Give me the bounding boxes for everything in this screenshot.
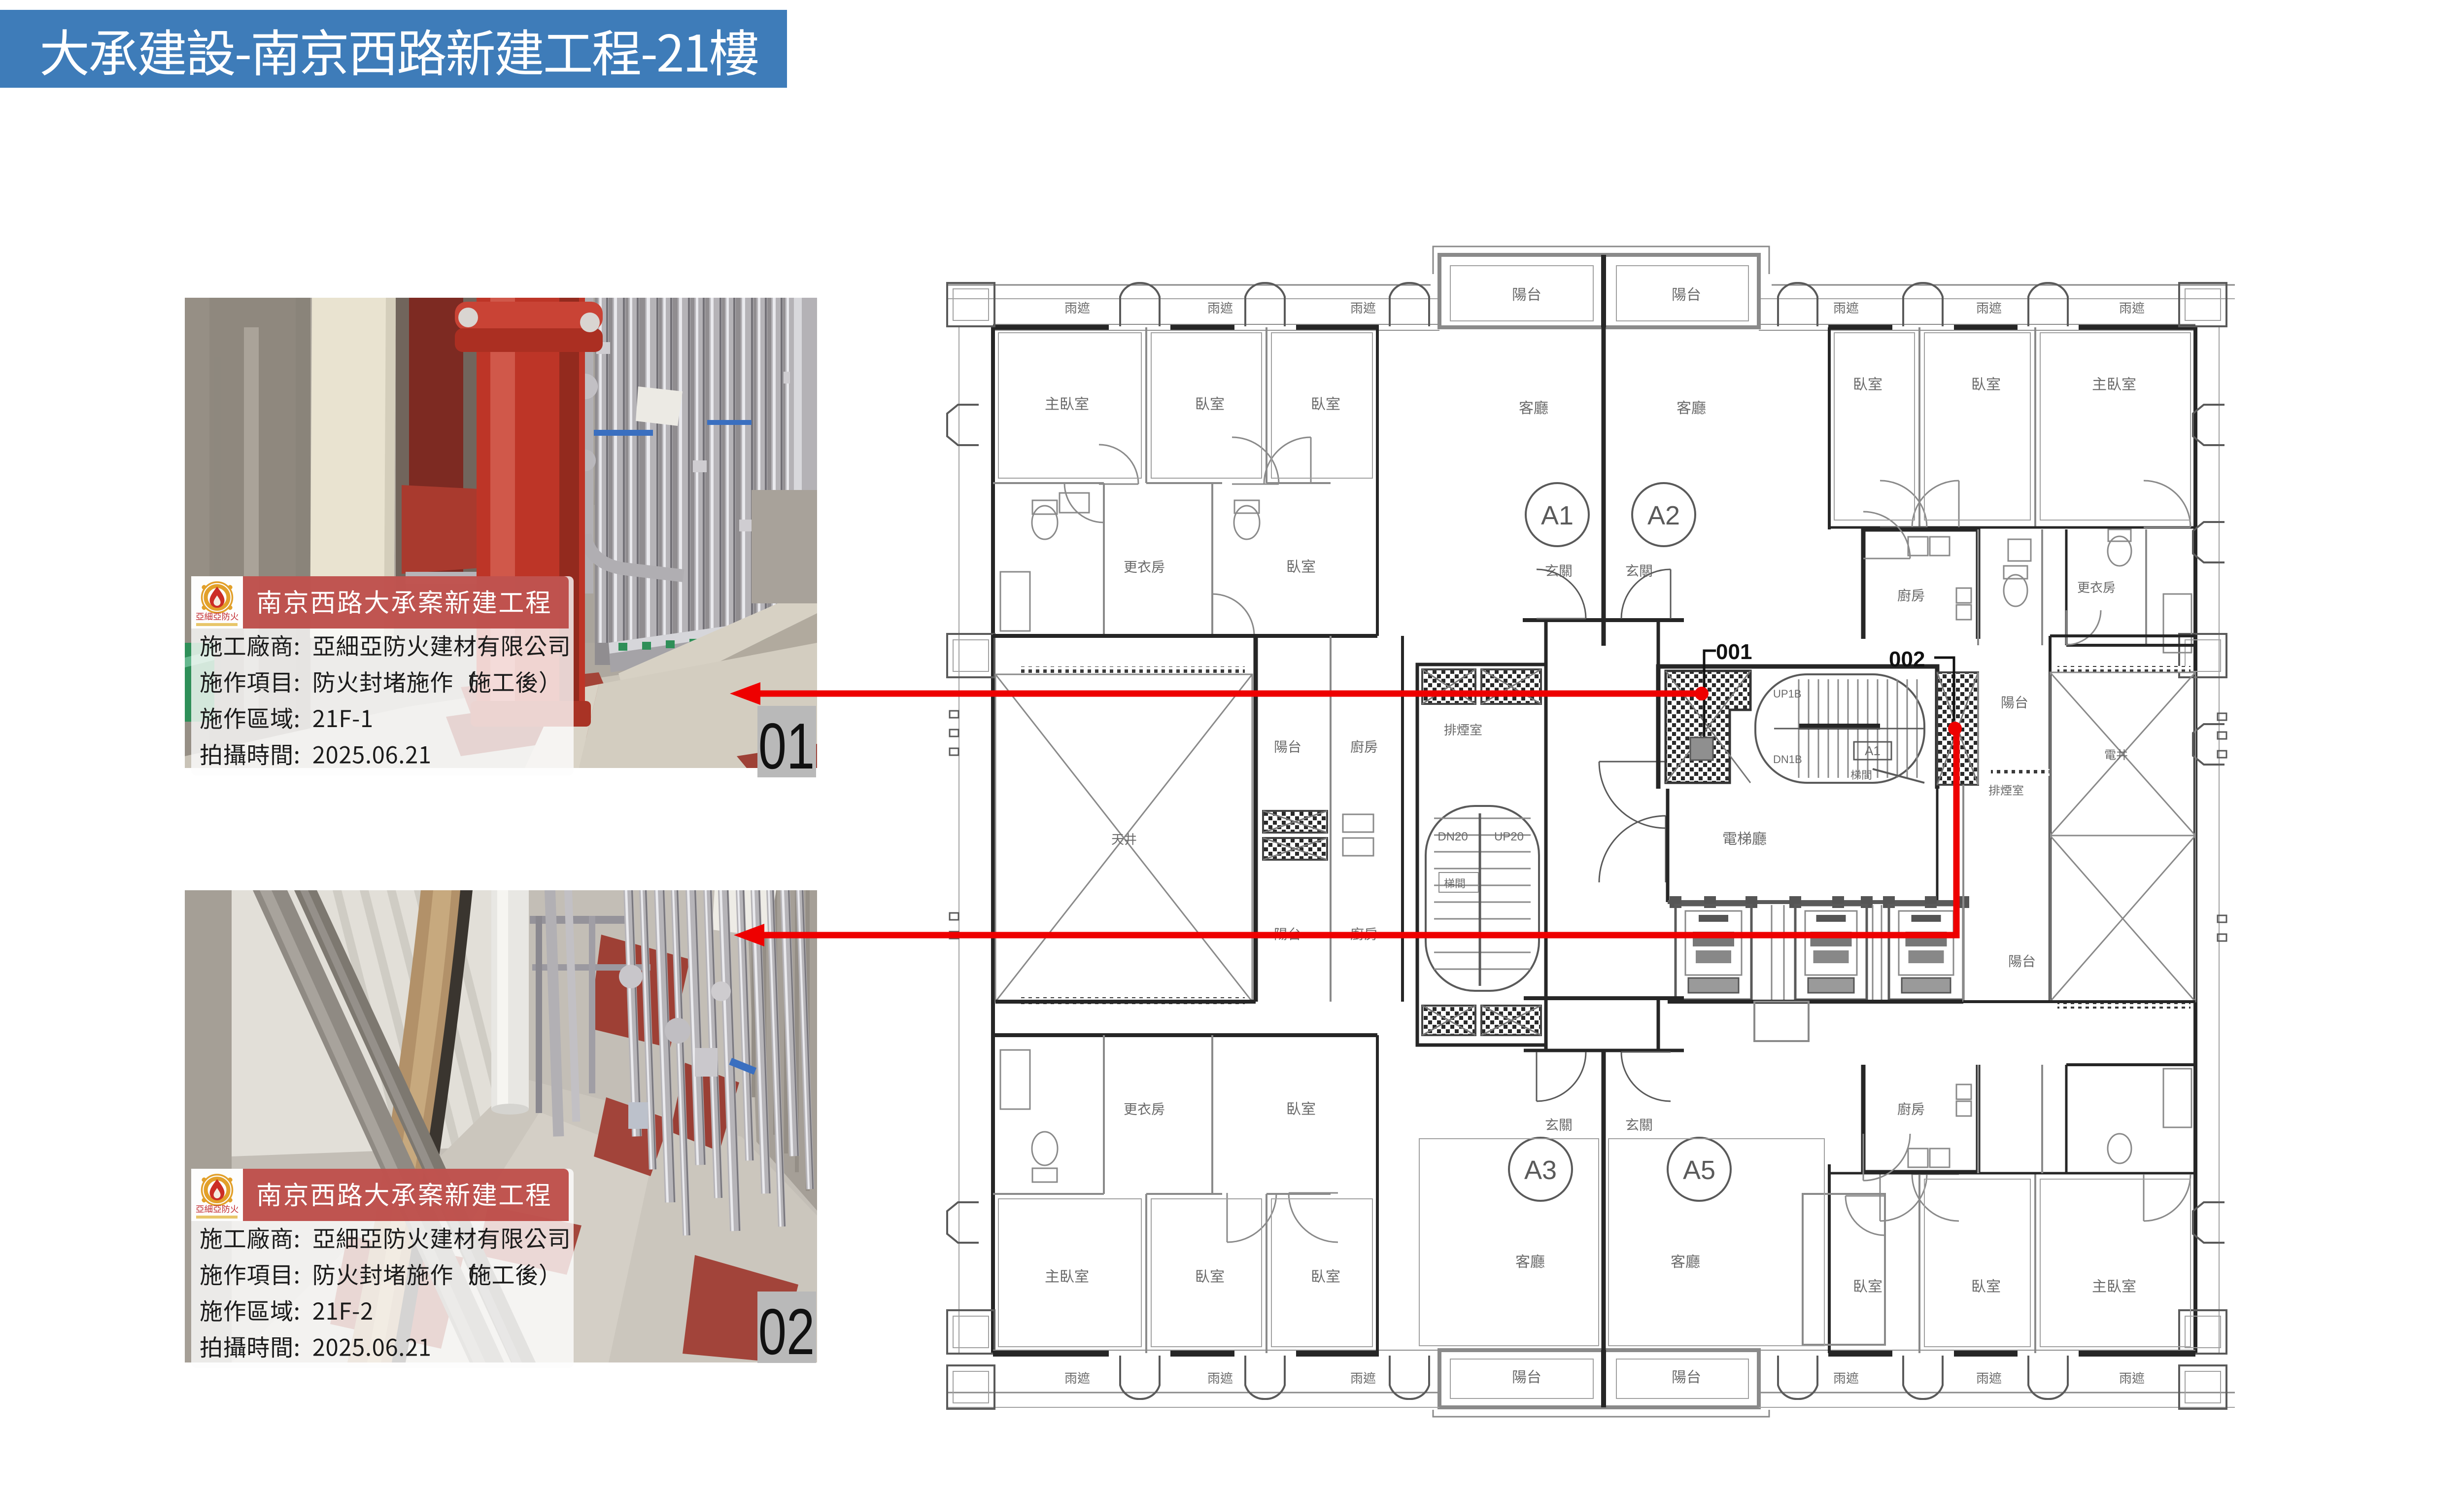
svg-text:DN1B: DN1B <box>1773 753 1802 766</box>
svg-text:A5: A5 <box>1683 1155 1715 1185</box>
svg-text:002: 002 <box>1889 647 1925 671</box>
svg-text:A2: A2 <box>1647 501 1680 530</box>
svg-text:01: 01 <box>758 710 815 783</box>
svg-text:DN20: DN20 <box>1437 830 1468 843</box>
svg-text:UP1B: UP1B <box>1773 688 1801 700</box>
svg-text:A1: A1 <box>1865 743 1881 758</box>
svg-text:A3: A3 <box>1524 1155 1557 1185</box>
svg-text:001: 001 <box>1716 640 1752 664</box>
svg-text:A1: A1 <box>1541 501 1574 530</box>
svg-text:UP20: UP20 <box>1494 830 1524 843</box>
svg-text:02: 02 <box>758 1296 815 1368</box>
